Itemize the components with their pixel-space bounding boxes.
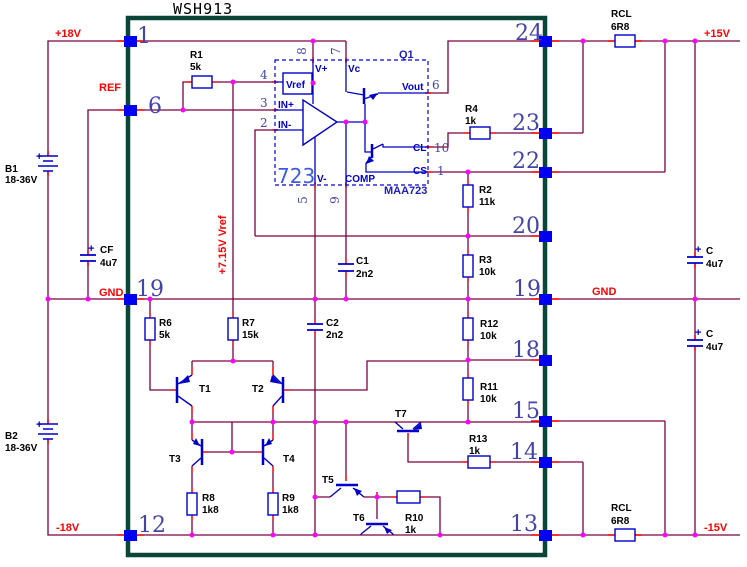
ic723-label-big: 723	[277, 164, 315, 188]
label-b2: B2	[5, 431, 18, 442]
label-r13: R13	[469, 434, 488, 445]
ic723-label-inplus: IN+	[278, 100, 294, 111]
pin-label-1: 1	[137, 24, 151, 49]
label-cf-value: 4u7	[100, 258, 118, 269]
label-r9-value: 1k8	[282, 505, 299, 516]
resistor-r9	[268, 493, 278, 515]
rail-label-gnd-left: GND	[99, 287, 124, 299]
pin-label-18: 18	[512, 338, 540, 363]
capacitor-plates	[80, 255, 703, 346]
rail-label-minus15v: -15V	[704, 522, 728, 534]
resistor-r13	[468, 456, 490, 468]
label-rcl-bottom: RCL	[611, 503, 632, 514]
label-c-bottom-plus: +	[695, 327, 701, 339]
resistor-r1	[192, 76, 212, 88]
t1-arrow	[179, 375, 190, 384]
pin-square-23	[539, 128, 552, 139]
pin-square-22	[539, 167, 552, 178]
label-r9: R9	[282, 493, 295, 504]
pin-square-1	[124, 36, 137, 47]
ic723-pin-6: 6	[432, 78, 440, 92]
resistor-boxes	[145, 35, 635, 541]
label-r6-value: 5k	[159, 330, 171, 341]
label-t7: T7	[395, 409, 407, 420]
ic723-pin-10: 10	[434, 141, 449, 155]
ic723-label-vplus: V+	[315, 64, 328, 75]
rail-label-plus18v: +18V	[55, 28, 82, 40]
pin-label-20: 20	[512, 214, 540, 239]
resistor-r11	[463, 378, 473, 400]
label-c2-value: 2n2	[326, 330, 344, 341]
ic723-label-q1: Q1	[399, 49, 414, 61]
label-c-top-value: 4u7	[706, 259, 724, 270]
ic723-label-cs: CS	[413, 166, 427, 177]
label-rcl-top: RCL	[611, 9, 632, 20]
ic723-pin-8: 8	[295, 47, 309, 55]
label-c2: C2	[326, 318, 339, 329]
pin-label-22: 22	[512, 149, 540, 174]
pin-label-12: 12	[138, 513, 166, 538]
label-b1-value: 18-36V	[5, 175, 38, 186]
wire-mirror-bases	[207, 422, 258, 452]
wire-bottom-right	[545, 421, 740, 535]
resistor-r10	[397, 491, 420, 503]
pin-square-20	[539, 231, 552, 242]
pin-square-6	[124, 105, 137, 116]
capacitor-cf	[80, 255, 96, 261]
rail-label-plus15v: +15V	[704, 28, 731, 40]
label-r10-value: 1k	[405, 525, 417, 536]
label-t6: T6	[353, 513, 365, 524]
t3-arrow	[193, 438, 200, 446]
ic723-pin-4: 4	[260, 68, 268, 82]
label-c-top-plus: +	[695, 244, 701, 256]
label-c-top: C	[706, 246, 713, 257]
rail-label-gnd-right: GND	[592, 286, 617, 298]
label-r11-value: 10k	[480, 394, 497, 405]
pin-square-13	[539, 530, 552, 541]
resistor-rcl-bottom	[615, 529, 635, 541]
label-t1: T1	[199, 384, 211, 395]
label-r4: R4	[465, 104, 478, 115]
label-r10: R10	[405, 513, 424, 524]
labels: WSH913 1 6 19 12 24 23 22 20 19 18 15 14…	[5, 0, 731, 538]
pin-label-19-right: 19	[513, 277, 541, 302]
label-r8-value: 1k8	[202, 505, 219, 516]
pin-label-6: 6	[148, 94, 162, 119]
ic723-pin-9: 9	[328, 196, 342, 204]
label-r6: R6	[159, 318, 172, 329]
label-t5: T5	[322, 475, 334, 486]
label-c1: C1	[356, 256, 369, 267]
ic723-pin-2: 2	[260, 116, 268, 130]
pin-label-14: 14	[510, 440, 538, 465]
resistor-r12	[463, 318, 473, 340]
label-r12-value: 10k	[480, 331, 497, 342]
ic723-label-vout: Vout	[402, 82, 424, 93]
wire-top-right	[545, 41, 740, 172]
label-r3-value: 10k	[479, 267, 496, 278]
resistor-r7	[228, 318, 238, 340]
label-t3: T3	[169, 454, 181, 465]
ic723-label-vref: Vref	[286, 80, 306, 91]
label-r1: R1	[190, 50, 203, 61]
ic723-label-comp: COMP	[345, 174, 375, 185]
wire-r6-t1base	[150, 299, 171, 390]
label-b2-plus: +	[36, 419, 42, 431]
label-r1-value: 5k	[190, 62, 202, 73]
label-rcl-top-value: 6R8	[611, 22, 630, 33]
pin-label-19-left: 19	[136, 277, 164, 302]
label-r2-value: 11k	[479, 197, 496, 208]
capacitor-c-top	[687, 257, 703, 263]
page-title: WSH913	[173, 0, 233, 18]
pin-label-23: 23	[512, 111, 540, 136]
label-b1: B1	[5, 164, 18, 175]
capacitor-c1	[338, 264, 354, 271]
ic723-label-vminus: V-	[317, 174, 326, 185]
capacitor-c-bottom	[687, 340, 703, 346]
t7-arrow	[413, 423, 422, 430]
label-cf-plus: +	[88, 243, 94, 255]
label-b1-plus: +	[36, 151, 42, 163]
wire-vout-pin24	[428, 41, 545, 93]
rail-label-minus18v: -18V	[56, 522, 80, 534]
resistor-r4	[470, 127, 490, 139]
ic723-label-inminus: IN-	[278, 120, 291, 131]
label-c1-value: 2n2	[356, 269, 374, 280]
hybrid-border	[128, 18, 545, 555]
label-t4: T4	[283, 454, 295, 465]
rail-label-vref715: +7.15V Vref	[217, 215, 229, 274]
label-r13-value: 1k	[469, 446, 481, 457]
ic723-pin-3: 3	[260, 96, 268, 110]
ic723-label-cl: CL	[413, 143, 426, 154]
pin-square-14	[539, 457, 552, 468]
label-cf: CF	[100, 245, 113, 256]
pin-label-13: 13	[510, 512, 538, 537]
wire-t2base-pin18	[290, 360, 545, 390]
label-r12: R12	[480, 319, 499, 330]
ic723-label-part: MAA723	[384, 185, 427, 197]
resistor-rcl-top	[615, 35, 635, 47]
internal-emitter-arrow-top	[369, 93, 378, 100]
resistor-r6	[145, 318, 155, 340]
capacitor-c2	[307, 324, 323, 330]
rail-label-ref: REF	[99, 82, 121, 94]
schematic-page: WSH913 1 6 19 12 24 23 22 20 19 18 15 14…	[0, 0, 747, 567]
pin-square-18	[539, 355, 552, 366]
label-rcl-bottom-value: 6R8	[611, 516, 630, 527]
label-r2: R2	[479, 185, 492, 196]
resistor-r3	[463, 255, 473, 277]
schematic-canvas: WSH913 1 6 19 12 24 23 22 20 19 18 15 14…	[0, 0, 747, 567]
pin-square-12	[124, 530, 137, 541]
label-c-bottom-value: 4u7	[706, 342, 724, 353]
label-r11: R11	[480, 382, 498, 393]
label-r3: R3	[479, 255, 492, 266]
resistor-r2	[463, 185, 473, 207]
label-r7: R7	[242, 318, 255, 329]
t2-arrow	[270, 375, 281, 384]
t4-arrow	[265, 438, 272, 446]
pin-label-24: 24	[515, 21, 543, 46]
label-r4-value: 1k	[465, 116, 477, 127]
label-t2: T2	[252, 384, 264, 395]
ic723-pin-7: 7	[329, 47, 343, 55]
label-b2-value: 18-36V	[5, 443, 38, 454]
pin-label-15: 15	[512, 399, 540, 424]
pin-square-15	[539, 416, 552, 427]
ic723-label-vc: Vc	[348, 64, 361, 75]
ic723-pin-5: 5	[296, 196, 310, 204]
opamp-triangle	[303, 100, 337, 145]
resistor-r8	[187, 493, 197, 515]
ic723-pin-1: 1	[437, 164, 445, 178]
label-r8: R8	[202, 493, 215, 504]
label-r7-value: 15k	[242, 330, 259, 341]
label-c-bottom: C	[706, 329, 713, 340]
